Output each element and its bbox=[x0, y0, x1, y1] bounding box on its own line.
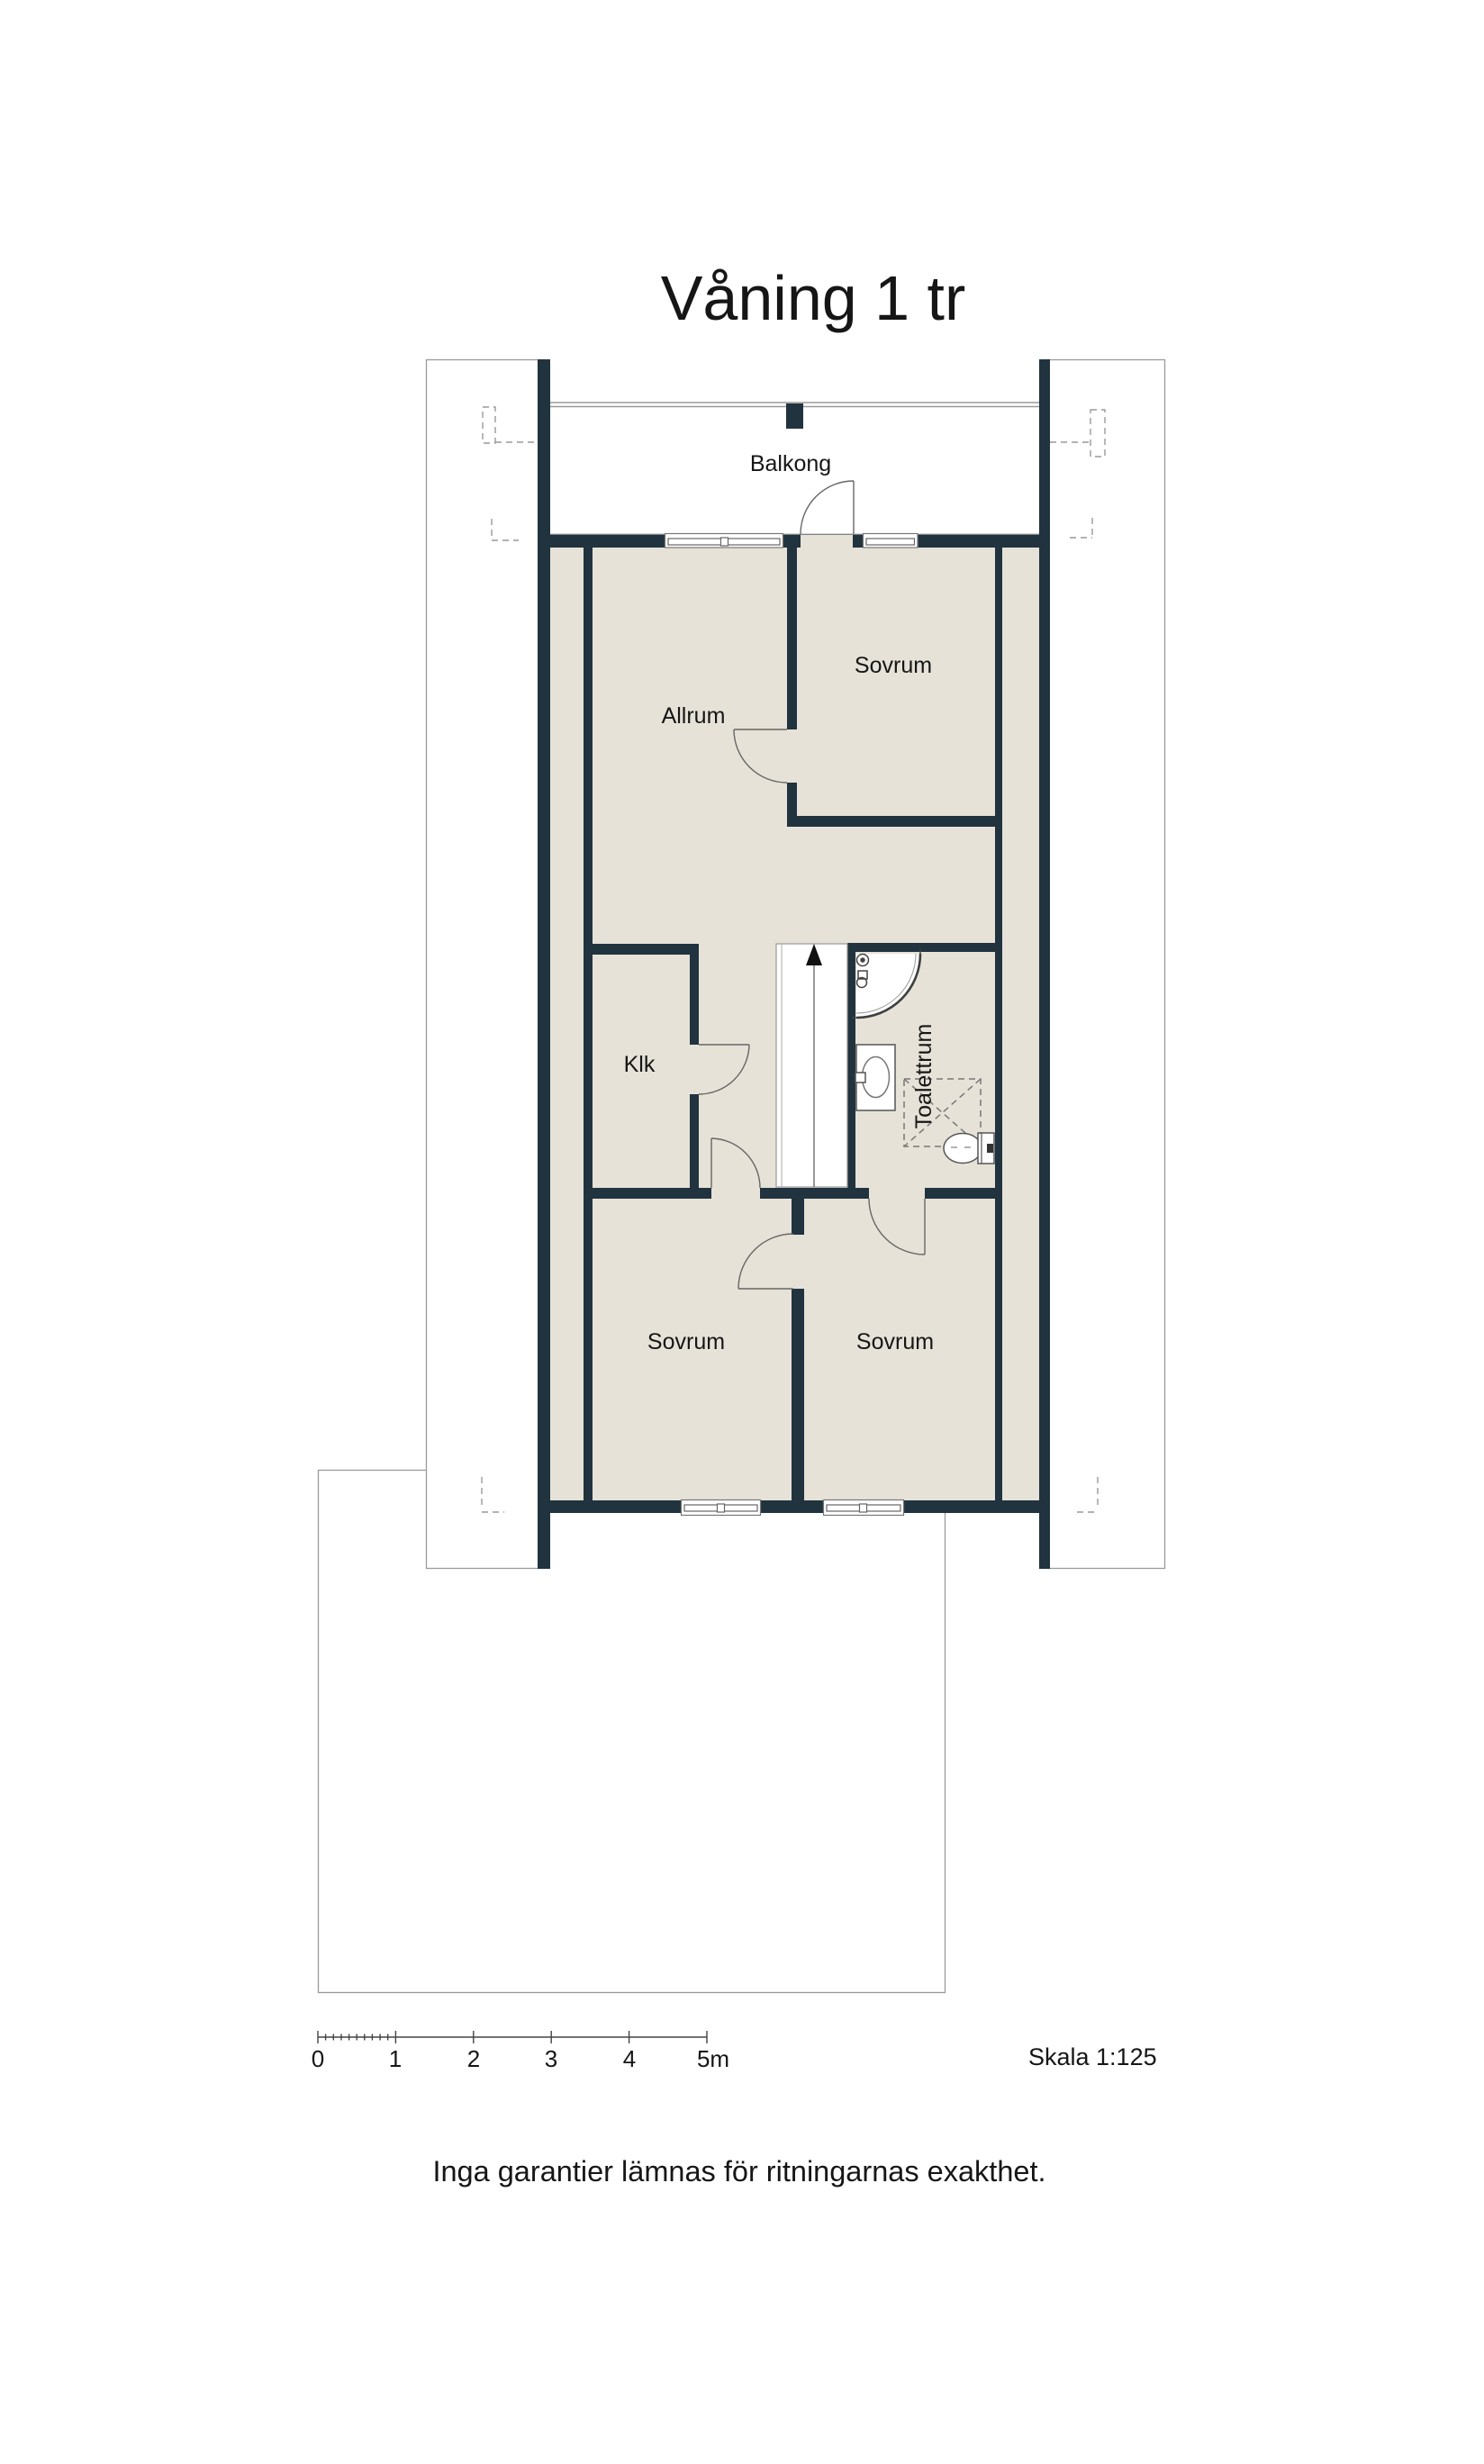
svg-text:Sovrum: Sovrum bbox=[647, 1329, 725, 1354]
svg-text:2: 2 bbox=[467, 2045, 480, 2072]
svg-text:0: 0 bbox=[312, 2045, 324, 2072]
svg-text:4: 4 bbox=[623, 2045, 636, 2072]
svg-text:Balkong: Balkong bbox=[750, 451, 831, 476]
svg-text:3: 3 bbox=[545, 2045, 557, 2072]
svg-text:Toalettrum: Toalettrum bbox=[911, 1024, 937, 1129]
svg-text:Våning 1 tr: Våning 1 tr bbox=[661, 263, 966, 333]
svg-text:Inga garantier lämnas för ritn: Inga garantier lämnas för ritningarnas e… bbox=[432, 2155, 1045, 2188]
svg-text:Allrum: Allrum bbox=[662, 703, 726, 729]
svg-text:Skala 1:125: Skala 1:125 bbox=[1028, 2043, 1157, 2070]
svg-text:1: 1 bbox=[389, 2045, 402, 2072]
svg-text:5m: 5m bbox=[697, 2045, 729, 2072]
svg-text:Klk: Klk bbox=[624, 1052, 656, 1077]
svg-text:Sovrum: Sovrum bbox=[855, 653, 932, 678]
svg-text:Sovrum: Sovrum bbox=[856, 1329, 934, 1354]
